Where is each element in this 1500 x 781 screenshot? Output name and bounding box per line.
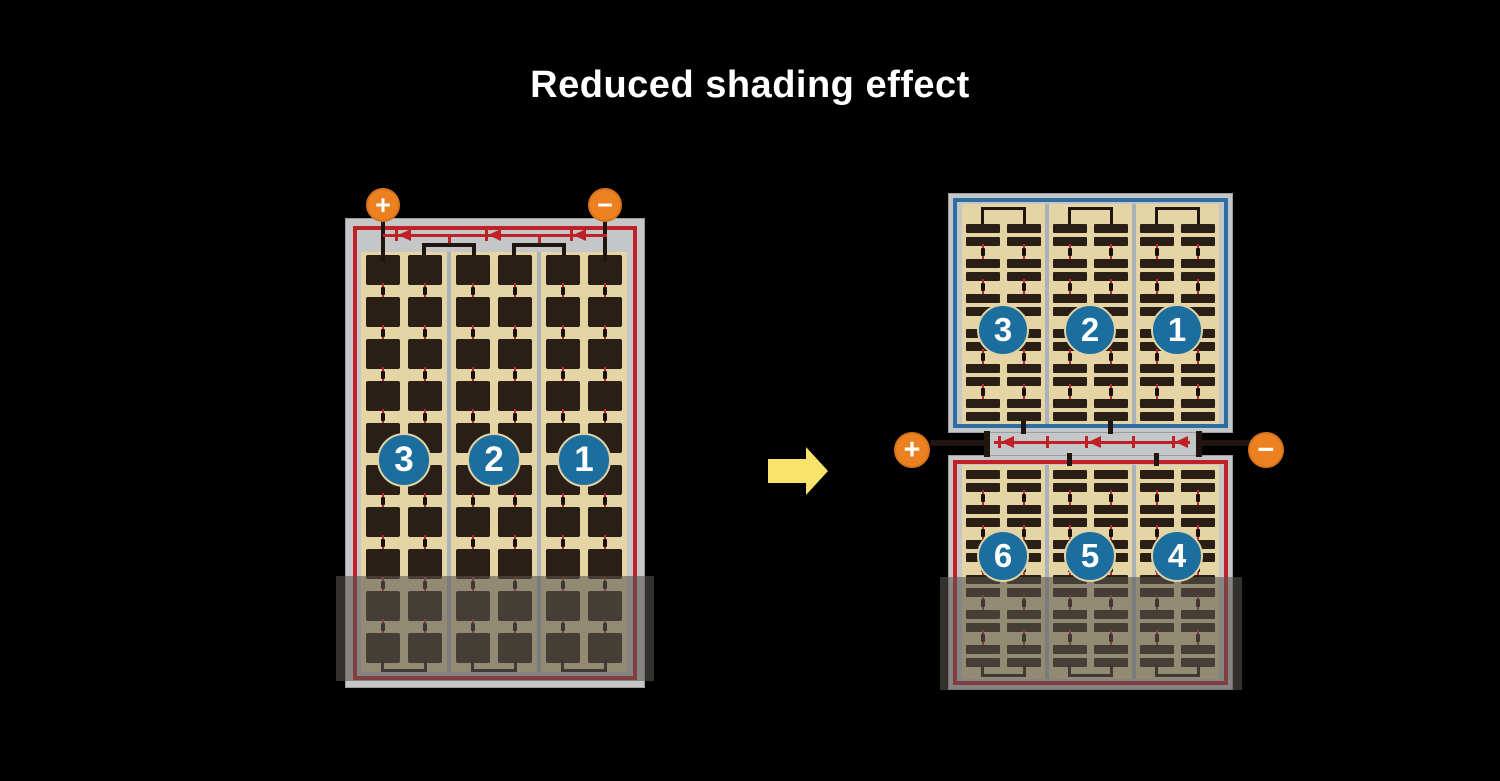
solar-cell [1053,412,1087,421]
string-number: 6 [994,537,1012,575]
cell-connector [423,329,427,337]
string-number: 2 [484,440,503,480]
solar-cell [588,549,622,579]
cell-connector [1155,494,1159,502]
cell-connector [423,413,427,421]
solar-cell [966,518,1000,527]
solar-cell [1094,364,1128,373]
solar-cell [366,339,400,369]
bypass-diode-icon [1085,436,1102,448]
cell-connector [513,539,517,547]
solar-cell [1007,224,1041,233]
solar-cell [1094,483,1128,492]
transform-arrow-head [806,447,828,495]
solar-cell [1181,294,1215,303]
negative-terminal: − [588,188,622,222]
solar-cell [1140,470,1174,479]
shade-overlay [940,577,1242,690]
cell-connector [471,539,475,547]
solar-cell [1053,377,1087,386]
cell-connector [1022,283,1026,291]
cell-connector [423,497,427,505]
cell-connector [1196,283,1200,291]
cell-connector [1109,353,1113,361]
cell-connector [513,413,517,421]
solar-cell [1094,272,1128,281]
solar-cell [1181,237,1215,246]
negative-lead-wire [1198,440,1256,446]
solar-cell [1053,224,1087,233]
solar-cell [546,549,580,579]
cell-connector [1155,248,1159,256]
solar-cell [1053,294,1087,303]
cell-connector [561,329,565,337]
junction-contact-bar [984,431,990,457]
string-number-badge: 4 [1151,530,1203,582]
solar-cell [366,381,400,411]
solar-cell [1094,505,1128,514]
solar-cell [966,364,1000,373]
cell-connector [381,371,385,379]
solar-cell [366,297,400,327]
solar-cell [966,399,1000,408]
solar-cell [546,381,580,411]
bypass-diode-icon [1172,436,1189,448]
cell-connector [981,529,985,537]
cell-connector [1022,494,1026,502]
string-number: 3 [994,311,1012,349]
cell-connector [1196,248,1200,256]
solar-cell [546,507,580,537]
cell-connector [381,329,385,337]
solar-cell [1007,377,1041,386]
diagram-canvas: Reduced shading effect + − 3 2 1 [0,0,1500,781]
solar-cell [966,377,1000,386]
cell-connector [381,413,385,421]
bypass-diode-icon [395,229,412,241]
solar-cell [1181,399,1215,408]
cell-connector [513,329,517,337]
solar-cell [1007,470,1041,479]
solar-cell [1053,259,1087,268]
solar-cell [1094,237,1128,246]
string-junction-stub [1108,421,1113,434]
cell-connector [381,287,385,295]
positive-terminal: + [894,432,930,468]
solar-cell [456,549,490,579]
cell-connector [1155,353,1159,361]
cell-connector [1022,529,1026,537]
cell-connector [603,497,607,505]
solar-cell [408,381,442,411]
plus-icon: + [375,192,391,219]
solar-cell [1140,518,1174,527]
solar-cell [1140,224,1174,233]
solar-cell [966,470,1000,479]
solar-cell [1140,259,1174,268]
string-bridge-wire [422,243,476,256]
solar-cell [408,549,442,579]
minus-icon: − [1258,436,1275,465]
solar-cell [1140,505,1174,514]
solar-cell [966,259,1000,268]
cell-connector [603,329,607,337]
cell-connector [471,329,475,337]
solar-cell [1094,412,1128,421]
solar-cell [1053,483,1087,492]
positive-lead-wire [930,440,988,446]
solar-cell [966,505,1000,514]
cell-connector [1109,283,1113,291]
solar-cell [1007,272,1041,281]
solar-cell [456,297,490,327]
negative-terminal: − [1248,432,1284,468]
cell-connector [1068,248,1072,256]
solar-cell [1007,364,1041,373]
string-junction-stub [1154,453,1159,466]
string-number-badge: 6 [977,530,1029,582]
bypass-diode-icon [485,229,502,241]
solar-cell [1181,364,1215,373]
solar-cell [1140,237,1174,246]
solar-cell [1181,518,1215,527]
solar-cell [1094,518,1128,527]
solar-cell [456,507,490,537]
cell-connector [561,287,565,295]
solar-cell [408,339,442,369]
solar-cell [966,272,1000,281]
bypass-diode-icon [570,229,587,241]
string-number-badge: 3 [377,433,431,487]
cell-connector [1068,388,1072,396]
solar-cell [408,297,442,327]
solar-cell [408,255,442,285]
cell-connector [381,497,385,505]
solar-cell [588,339,622,369]
string-number: 1 [1168,311,1186,349]
bypass-diode-icon [998,436,1015,448]
after-panel-top-half: 3 2 1 [948,193,1233,433]
solar-cell [456,381,490,411]
string-bridge-wire [512,243,566,256]
solar-cell [1053,399,1087,408]
solar-cell [966,224,1000,233]
cell-connector [1155,283,1159,291]
solar-cell [1094,294,1128,303]
cell-connector [981,388,985,396]
cell-connector [1155,388,1159,396]
diode-tap-wire [1132,436,1135,448]
cell-connector [1155,529,1159,537]
cell-connector [603,287,607,295]
solar-cell [588,297,622,327]
string-number: 1 [574,440,593,480]
cell-connector [1068,529,1072,537]
cell-connector [1109,248,1113,256]
cell-connector [603,413,607,421]
cell-connector [981,494,985,502]
string-number-badge: 1 [1151,304,1203,356]
diode-tap-wire [1046,436,1049,448]
string-junction-stub [1021,421,1026,434]
cell-connector [1022,353,1026,361]
solar-cell [546,255,580,285]
cell-connector [1196,494,1200,502]
solar-cell [366,549,400,579]
solar-cell [1053,237,1087,246]
return-wire [1155,207,1200,224]
cell-connector [471,371,475,379]
solar-cell [1181,259,1215,268]
string-number-badge: 3 [977,304,1029,356]
solar-cell [1181,412,1215,421]
solar-cell [498,297,532,327]
solar-cell [1007,518,1041,527]
solar-cell [1181,224,1215,233]
cell-connector [1068,494,1072,502]
solar-cell [498,255,532,285]
solar-cell [1140,294,1174,303]
solar-cell [966,294,1000,303]
cell-connector [513,287,517,295]
cell-connector [1196,529,1200,537]
solar-cell [456,255,490,285]
plus-icon: + [904,436,921,465]
solar-cell [1053,505,1087,514]
solar-cell [1094,224,1128,233]
string-number: 2 [1081,311,1099,349]
solar-cell [1007,399,1041,408]
transform-arrow [768,459,808,483]
string-number: 4 [1168,537,1186,575]
cell-connector [513,371,517,379]
solar-cell [1181,470,1215,479]
cell-connector [561,497,565,505]
string-number-badge: 5 [1064,530,1116,582]
return-wire [981,207,1026,224]
string-number-badge: 1 [557,433,611,487]
solar-cell [1053,364,1087,373]
solar-cell [1094,399,1128,408]
cell-connector [423,371,427,379]
cell-connector [1109,494,1113,502]
solar-cell [1094,377,1128,386]
solar-cell [1140,377,1174,386]
solar-cell [1053,518,1087,527]
solar-cell [1181,483,1215,492]
solar-cell [1094,470,1128,479]
string-number: 3 [394,440,413,480]
solar-cell [1181,272,1215,281]
cell-connector [981,283,985,291]
return-wire [1068,207,1113,224]
cell-connector [1196,353,1200,361]
solar-cell [498,507,532,537]
solar-cell [966,237,1000,246]
cell-connector [603,371,607,379]
cell-connector [423,539,427,547]
solar-cell [1140,364,1174,373]
cell-connector [1196,388,1200,396]
string-junction-stub [1067,453,1072,466]
solar-cell [1007,259,1041,268]
solar-cell [456,339,490,369]
cell-connector [1068,283,1072,291]
cell-connector [981,248,985,256]
positive-terminal: + [366,188,400,222]
solar-cell [1140,272,1174,281]
solar-cell [546,339,580,369]
string-number-badge: 2 [1064,304,1116,356]
solar-cell [1007,483,1041,492]
cell-connector [513,497,517,505]
solar-cell [366,507,400,537]
solar-cell [1053,470,1087,479]
cell-connector [471,413,475,421]
solar-cell [1007,294,1041,303]
solar-cell [966,412,1000,421]
solar-cell [498,381,532,411]
cell-connector [561,371,565,379]
solar-cell [1140,412,1174,421]
cell-connector [471,497,475,505]
cell-connector [1109,529,1113,537]
cell-connector [381,539,385,547]
junction-contact-bar [1196,431,1202,457]
cell-connector [471,287,475,295]
solar-cell [1007,505,1041,514]
string-number-badge: 2 [467,433,521,487]
cell-connector [981,353,985,361]
cell-connector [423,287,427,295]
solar-cell [1094,259,1128,268]
cell-connector [1109,388,1113,396]
cell-connector [561,539,565,547]
cell-connector [1022,388,1026,396]
solar-cell [498,549,532,579]
solar-cell [1007,237,1041,246]
solar-cell [546,297,580,327]
cell-connector [561,413,565,421]
solar-cell [1140,399,1174,408]
solar-cell [1181,377,1215,386]
shade-overlay [336,576,654,681]
solar-cell [588,381,622,411]
solar-cell [1181,505,1215,514]
string-number: 5 [1081,537,1099,575]
solar-cell [498,339,532,369]
cell-connector [1022,248,1026,256]
solar-cell [588,507,622,537]
solar-cell [966,483,1000,492]
solar-cell [1140,483,1174,492]
solar-cell [408,507,442,537]
diagram-title: Reduced shading effect [0,64,1500,107]
minus-icon: − [597,192,613,219]
cell-connector [1068,353,1072,361]
solar-cell [1053,272,1087,281]
solar-cell [1007,412,1041,421]
cell-connector [603,539,607,547]
